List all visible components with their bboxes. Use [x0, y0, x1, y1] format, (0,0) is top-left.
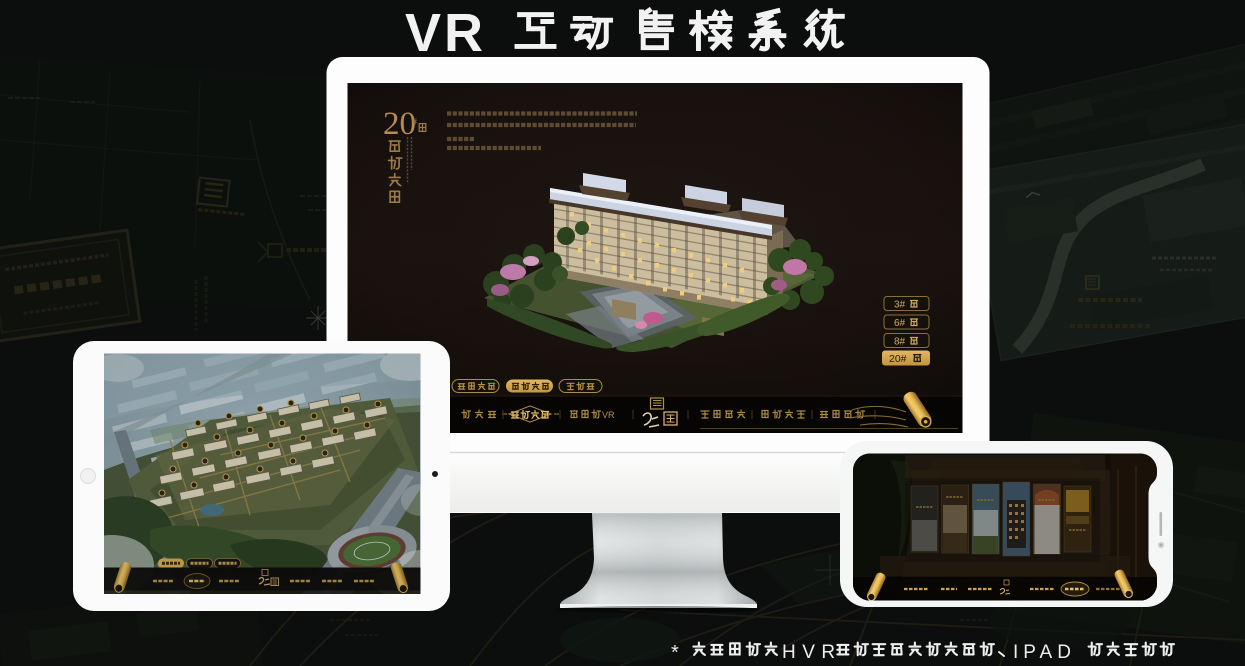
svg-text:*: *	[671, 642, 679, 664]
svg-text:20#: 20#	[889, 353, 907, 365]
svg-text:3#: 3#	[894, 300, 906, 311]
svg-text:VR: VR	[602, 410, 615, 420]
svg-text:HVR: HVR	[782, 642, 842, 663]
svg-text:VR: VR	[405, 3, 486, 63]
svg-text:6#: 6#	[894, 318, 906, 329]
svg-text:8#: 8#	[894, 337, 906, 348]
svg-text:IPAD: IPAD	[1013, 642, 1076, 663]
svg-text:#: #	[412, 117, 417, 128]
